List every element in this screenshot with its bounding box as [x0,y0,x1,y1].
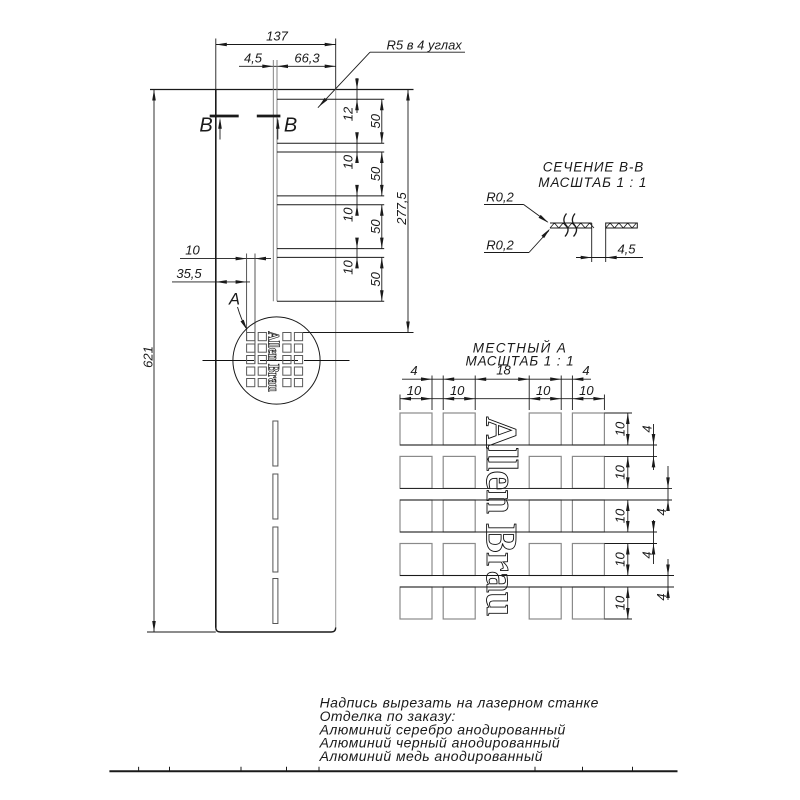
svg-text:10: 10 [612,552,627,567]
svg-text:10: 10 [341,260,356,275]
svg-text:50: 50 [368,219,383,234]
svg-text:4: 4 [654,508,669,515]
svg-text:10: 10 [341,207,356,222]
svg-text:10: 10 [612,508,627,523]
svg-text:12: 12 [341,106,356,121]
svg-text:4: 4 [640,551,655,558]
svg-text:137: 137 [266,29,288,44]
svg-text:50: 50 [368,271,383,286]
svg-text:10: 10 [612,464,627,479]
svg-text:4: 4 [654,593,669,600]
svg-text:B: B [199,115,212,137]
svg-text:4,5: 4,5 [617,242,636,257]
svg-text:R5 в 4 углах: R5 в 4 углах [387,38,463,53]
svg-text:Алюминий медь анодированный: Алюминий медь анодированный [319,748,543,764]
svg-text:10: 10 [341,154,356,169]
svg-text:МАСШТАБ 1 : 1: МАСШТАБ 1 : 1 [466,353,575,368]
svg-text:10: 10 [579,383,594,398]
svg-text:МАСШТАБ 1 : 1: МАСШТАБ 1 : 1 [538,175,647,190]
svg-text:СЕЧЕНИЕ В-В: СЕЧЕНИЕ В-В [543,160,644,175]
svg-text:B: B [284,115,297,137]
svg-text:35,5: 35,5 [176,266,202,281]
svg-text:4: 4 [640,425,655,432]
svg-text:18: 18 [496,363,511,378]
svg-text:R0,2: R0,2 [486,190,514,205]
svg-text:A: A [228,291,240,309]
svg-text:50: 50 [368,113,383,128]
svg-text:4: 4 [410,363,417,378]
svg-text:10: 10 [536,383,551,398]
svg-text:Allen Brau: Allen Brau [265,331,282,392]
svg-text:277,5: 277,5 [394,191,409,225]
svg-text:10: 10 [450,383,465,398]
svg-text:4,5: 4,5 [244,50,263,65]
svg-text:Allen Brau: Allen Brau [477,417,526,617]
svg-text:10: 10 [407,383,422,398]
svg-text:621: 621 [140,346,155,368]
svg-text:50: 50 [368,166,383,181]
svg-text:10: 10 [185,243,200,258]
svg-text:R0,2: R0,2 [486,238,514,253]
svg-text:10: 10 [612,421,627,436]
svg-text:10: 10 [612,595,627,610]
svg-text:66,3: 66,3 [294,50,320,65]
svg-text:4: 4 [582,363,589,378]
